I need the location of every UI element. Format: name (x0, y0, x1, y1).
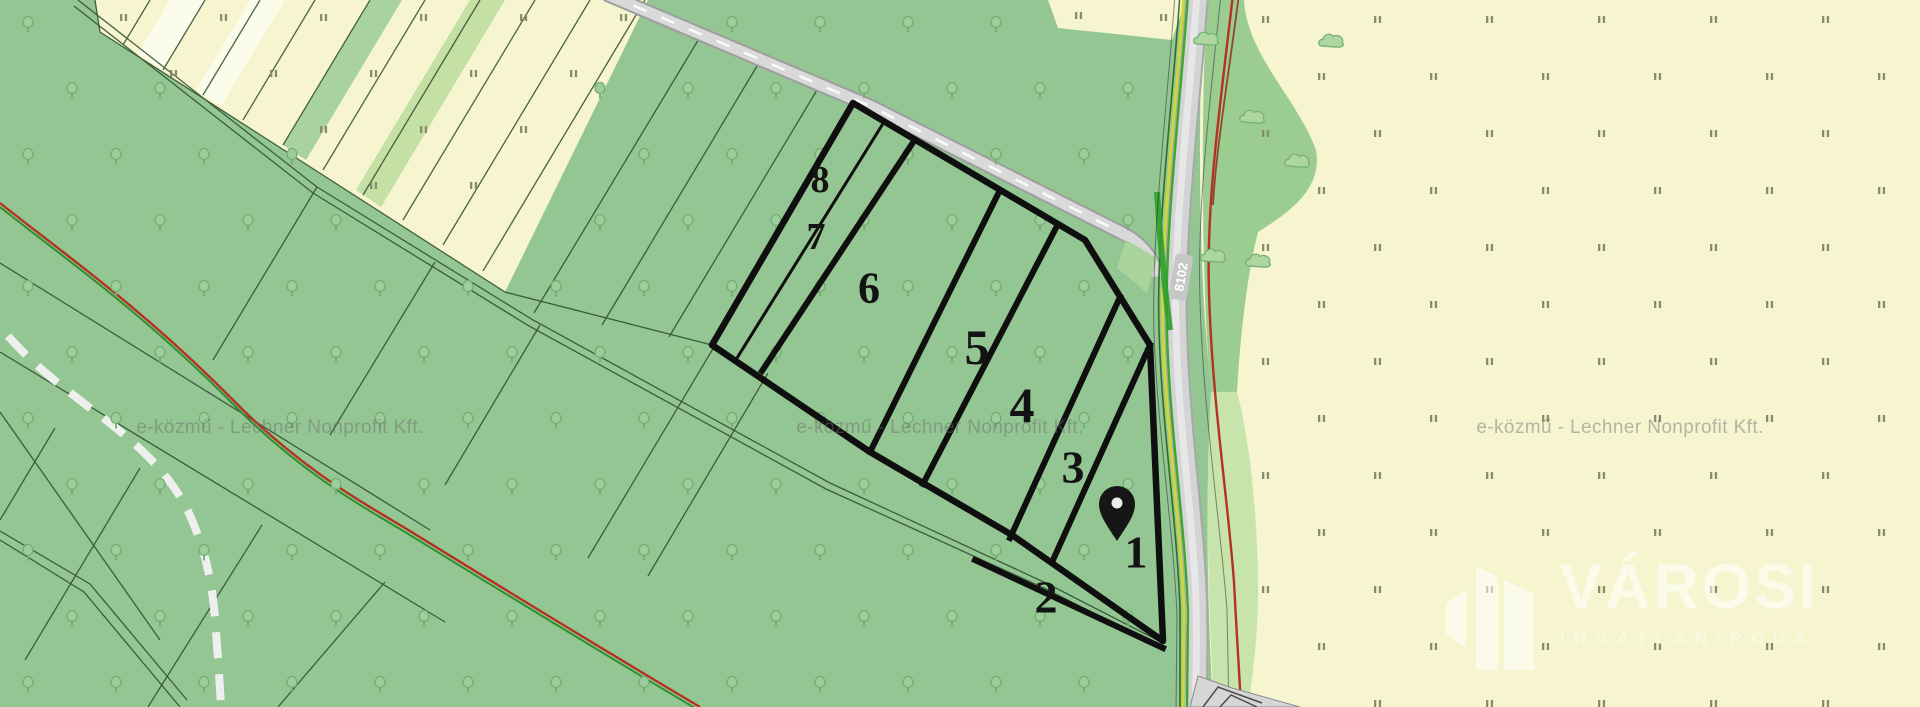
parcel-label-2: 2 (1035, 572, 1058, 623)
brand-logo-icon (1446, 552, 1540, 670)
watermark-text: e-közmű - Lechner Nonprofit Kft. (1476, 417, 1763, 439)
watermark-text: e-közmű - Lechner Nonprofit Kft. (796, 417, 1083, 439)
parcel-label-1: 1 (1125, 527, 1148, 578)
watermark-text: e-közmű - Lechner Nonprofit Kft. (136, 417, 423, 439)
parcel-label-8: 8 (811, 159, 830, 201)
brand-logo-title: VÁROSI (1560, 556, 1820, 619)
parcel-label-6: 6 (858, 264, 880, 313)
parcel-label-7: 7 (807, 216, 826, 258)
parcel-label-3: 3 (1062, 442, 1085, 493)
brand-logo: VÁROSI INGATLANIRODA (1446, 552, 1820, 670)
brand-logo-subtitle: INGATLANIRODA (1560, 629, 1820, 649)
parcel-label-5: 5 (965, 319, 990, 375)
map-viewport[interactable]: 8102 12345678 e-közmű - Lechner Nonprofi… (0, 0, 1920, 707)
